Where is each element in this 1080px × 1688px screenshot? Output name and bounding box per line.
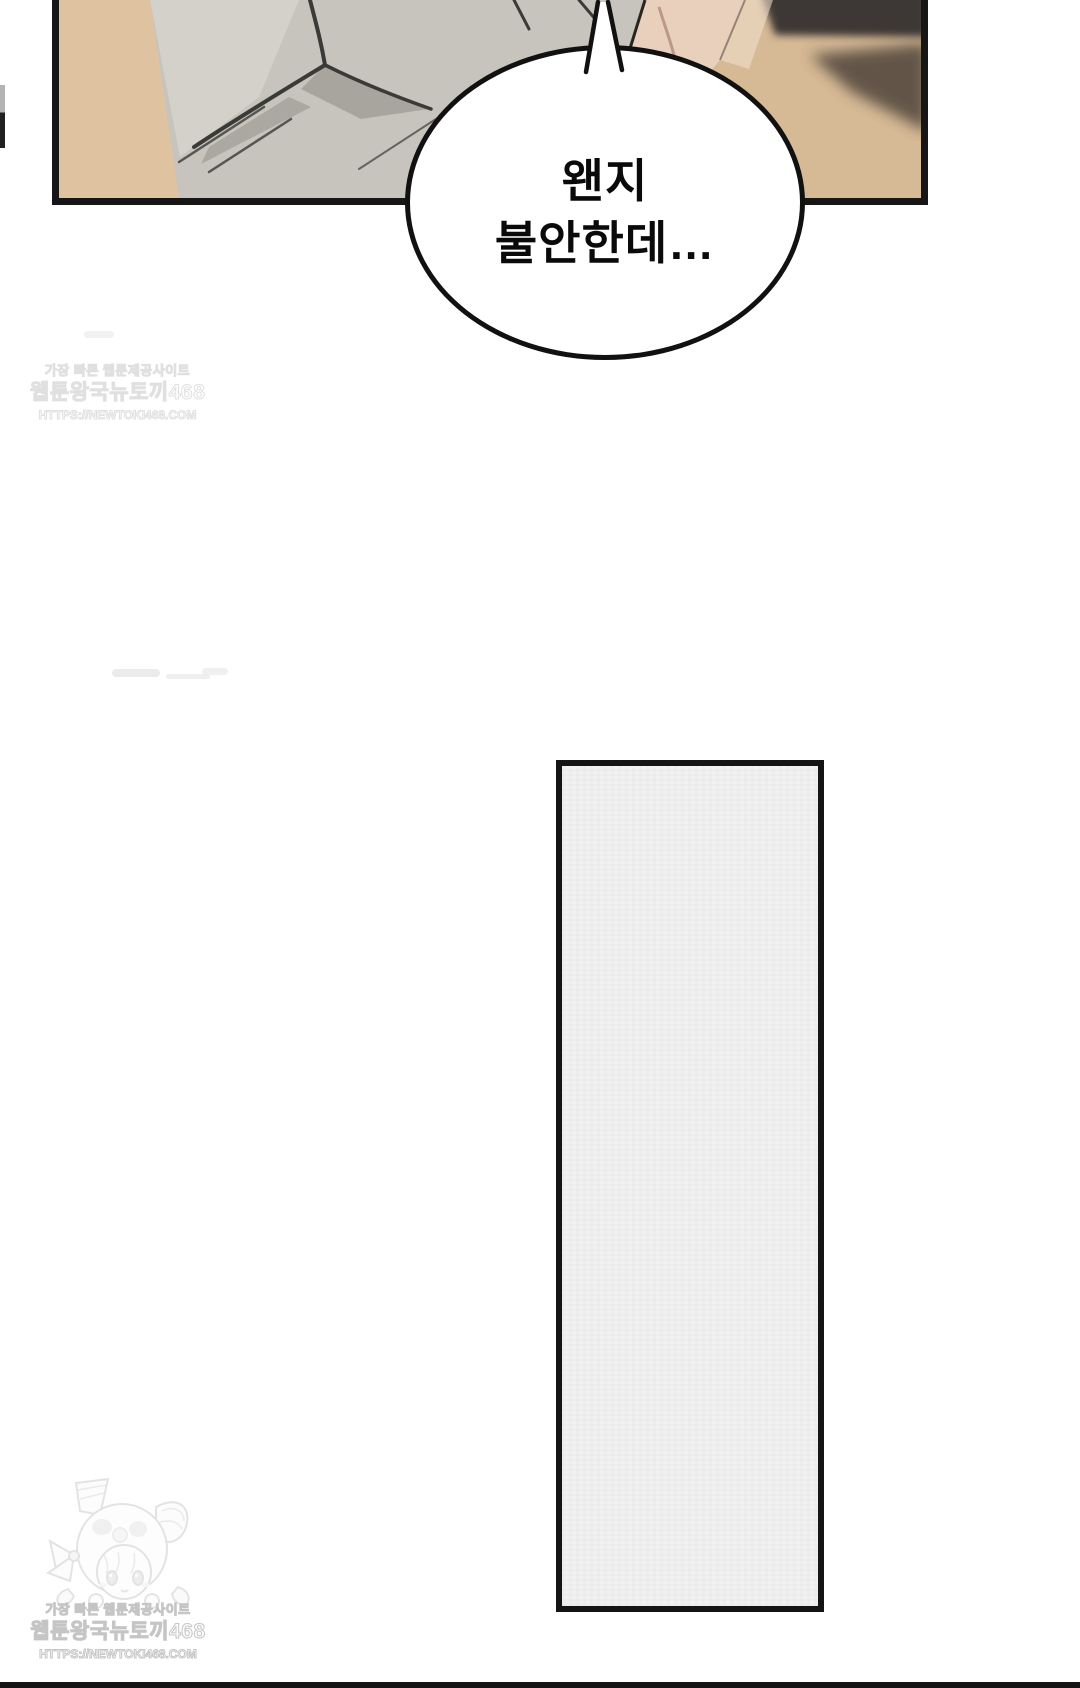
ghost-smudge <box>112 669 160 677</box>
next-panel-top-border <box>0 1682 1080 1688</box>
speech-bubble-text: 왠지 불안한데… <box>405 150 805 274</box>
watermark-top-line-2: 웹툰왕국뉴토끼468 <box>30 380 205 406</box>
rabbit-hood-chibi-girl-mascot-icon <box>40 1477 200 1609</box>
watermark-bottom-line-3: HTTPS://NEWTOKI468.COM <box>28 1645 208 1663</box>
webtoon-page: 왠지 불안한데… 가장 빠른 웹툰제공사이트 웹툰왕국뉴토끼468 HTTPS:… <box>0 0 1080 1688</box>
furniture-shadow-top <box>759 0 921 37</box>
speech-line-2: 불안한데… <box>405 212 805 274</box>
speech-line-1: 왠지 <box>405 150 805 212</box>
left-edge-art-fragment <box>0 85 5 148</box>
ghost-smudge <box>202 668 228 675</box>
watermark-top: 가장 빠른 웹툰제공사이트 웹툰왕국뉴토끼468 HTTPS://NEWTOKI… <box>30 362 205 424</box>
watermark-bottom-line-1: 가장 빠른 웹툰제공사이트 <box>28 1601 208 1619</box>
speech-bubble-tail <box>572 0 636 78</box>
watermark-top-line-1: 가장 빠른 웹툰제공사이트 <box>30 362 205 380</box>
watermark-bottom-line-2: 웹툰왕국뉴토끼468 <box>28 1619 208 1645</box>
comic-panel-tall-empty <box>556 760 824 1612</box>
ghost-smudge <box>84 331 114 338</box>
watermark-top-line-3: HTTPS://NEWTOKI468.COM <box>30 406 205 424</box>
watermark-bottom: 가장 빠른 웹툰제공사이트 웹툰왕국뉴토끼468 HTTPS://NEWTOKI… <box>28 1601 208 1663</box>
